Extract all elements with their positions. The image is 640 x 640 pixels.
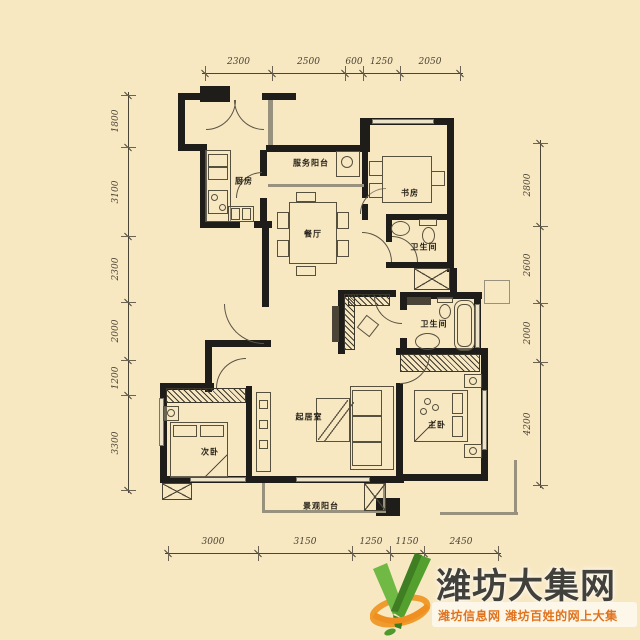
lamp: [167, 409, 175, 417]
cabinet-door: [259, 420, 268, 429]
second-bedroom-wardrobe: [166, 388, 246, 403]
dim-value: 2000: [523, 321, 533, 344]
dim-value: 1250: [370, 57, 393, 67]
wall-segment: [396, 474, 488, 481]
window: [475, 304, 480, 348]
wall-segment: [246, 386, 252, 480]
dim-value: 4200: [523, 412, 533, 435]
room-label-service-balcony: 服务阳台: [293, 158, 329, 169]
duct-shaft: [364, 483, 386, 511]
dim-line: [165, 553, 501, 554]
watermark: 潍坊大集网 潍坊信息网 潍坊百姓的网上大集: [0, 0, 640, 640]
dim-extension: [533, 485, 548, 486]
cabinet-door: [259, 440, 268, 449]
master-door-arc: [400, 354, 430, 384]
dim-extension: [533, 143, 548, 144]
toilet-bowl: [439, 304, 451, 319]
dim-value: 1150: [396, 537, 419, 547]
watermark-subtitle-band: [432, 602, 637, 627]
dim-value: 2050: [419, 57, 442, 67]
dining-chair: [296, 266, 316, 276]
window: [296, 477, 370, 482]
dim-value: 2800: [523, 173, 533, 196]
dining-chair: [277, 212, 289, 229]
dim-extension: [121, 395, 136, 396]
dim-value: 3300: [111, 431, 121, 454]
plant-decal: [424, 398, 431, 405]
dim-extension: [363, 66, 364, 81]
wall-segment: [178, 93, 185, 151]
pillow: [452, 416, 463, 437]
pillow: [452, 393, 463, 414]
kitchen-sink-bowl: [242, 208, 251, 220]
dim-value: 3000: [202, 537, 225, 547]
bathroom-shelf: [407, 297, 431, 305]
bathtub-inner: [457, 304, 472, 347]
wall-segment: [396, 383, 403, 481]
dim-extension: [272, 66, 273, 81]
dim-value: 2000: [111, 320, 121, 343]
entry-door-arc: [206, 100, 236, 130]
dim-value: 1250: [360, 537, 383, 547]
bookshelf: [344, 294, 355, 350]
tv-panel: [332, 306, 339, 342]
ac-platform: [484, 280, 510, 304]
lamp: [469, 447, 477, 455]
room-label-kitchen: 厨房: [235, 176, 253, 187]
dim-extension: [390, 546, 391, 561]
wall-segment: [200, 221, 240, 228]
room-label-view-balcony: 景观阳台: [303, 501, 339, 512]
dim-extension: [121, 360, 136, 361]
dining-chair: [277, 240, 289, 257]
plant-decal: [420, 408, 427, 415]
watermark-subtitle: 潍坊信息网 潍坊百姓的网上大集: [438, 607, 618, 624]
dim-extension: [460, 66, 461, 81]
dim-value: 2300: [111, 258, 121, 281]
dim-extension: [121, 490, 136, 491]
window: [372, 119, 434, 124]
kitchen-sink-bowl: [231, 208, 240, 220]
entry-door-arc: [234, 100, 264, 130]
nook-chair: [357, 315, 379, 337]
dim-extension: [121, 236, 136, 237]
toilet-tank: [419, 219, 437, 226]
window: [482, 390, 487, 450]
bathroom-sink: [391, 221, 410, 236]
dim-value: 3150: [294, 537, 317, 547]
railing-line: [262, 483, 265, 513]
dining-chair: [337, 240, 349, 257]
dim-extension: [168, 546, 169, 561]
sofa-cushion: [352, 442, 382, 466]
dim-value: 2600: [523, 253, 533, 276]
bathroom-sink: [415, 333, 440, 350]
watermark-title: 潍坊大集网: [436, 558, 616, 609]
pillow: [200, 425, 224, 437]
floorplan-canvas: 2300250060012502050180031002300200012003…: [0, 0, 640, 640]
bathroom2-door-arc: [374, 296, 402, 324]
study-chair: [431, 171, 445, 186]
lamp: [469, 377, 477, 385]
dim-line: [128, 92, 129, 493]
sofa-cushion: [352, 390, 382, 416]
study-chair: [369, 161, 383, 176]
dining-chair: [337, 212, 349, 229]
railing-line: [268, 100, 273, 145]
kitchen-sink: [208, 167, 228, 180]
dim-extension: [205, 66, 206, 81]
coffee-table-diagonal: [324, 402, 354, 442]
room-label-dining: 餐厅: [304, 229, 322, 240]
room-label-study: 书房: [401, 188, 419, 199]
wall-segment: [447, 118, 454, 272]
dim-extension: [121, 302, 136, 303]
room-label-master-bedroom: 主卧: [428, 420, 446, 431]
bed-fold: [204, 454, 228, 478]
stove-burner: [219, 204, 226, 211]
dim-extension: [400, 66, 401, 81]
living-door-arc: [224, 304, 264, 344]
duct-shaft: [414, 268, 450, 290]
dim-value: 1800: [111, 110, 121, 133]
dining-chair: [296, 192, 316, 202]
dim-extension: [424, 546, 425, 561]
second-bedroom-door-arc: [216, 358, 246, 388]
cabinet-door: [259, 400, 268, 409]
dim-value: 1200: [111, 366, 121, 389]
toilet-tank: [437, 297, 453, 303]
dim-extension: [121, 147, 136, 148]
dim-extension: [533, 362, 548, 363]
railing-line: [440, 512, 518, 515]
dim-line: [202, 73, 463, 74]
dim-extension: [498, 546, 499, 561]
green-check-logo-icon: [370, 551, 432, 639]
room-label-living-room: 起居室: [296, 412, 323, 423]
dim-extension: [533, 303, 548, 304]
dim-line: [540, 140, 541, 488]
dim-value: 2300: [227, 57, 250, 67]
dim-value: 2450: [450, 537, 473, 547]
washer-drum: [341, 156, 353, 168]
railing-line: [514, 460, 517, 515]
wall-segment: [262, 221, 269, 307]
dim-extension: [345, 66, 346, 81]
wall-segment: [262, 93, 296, 100]
dim-value: 600: [345, 57, 362, 67]
wall-segment: [362, 150, 368, 198]
dim-extension: [258, 546, 259, 561]
pillow: [173, 425, 197, 437]
sofa-cushion: [352, 416, 382, 442]
room-label-bathroom-2: 卫生间: [421, 319, 448, 330]
plant-decal: [432, 404, 439, 411]
kitchen-stove: [208, 190, 228, 214]
study-chair: [369, 183, 383, 198]
duct-shaft: [162, 483, 192, 500]
dim-extension: [121, 95, 136, 96]
kitchen-sink: [208, 154, 228, 167]
room-label-second-bedroom: 次卧: [201, 447, 219, 458]
railing-line: [268, 184, 364, 187]
dim-value: 3100: [111, 180, 121, 203]
stove-burner: [211, 194, 218, 201]
dim-extension: [352, 546, 353, 561]
dim-value: 2500: [297, 57, 320, 67]
room-label-bathroom-1: 卫生间: [411, 242, 438, 253]
dim-extension: [533, 226, 548, 227]
